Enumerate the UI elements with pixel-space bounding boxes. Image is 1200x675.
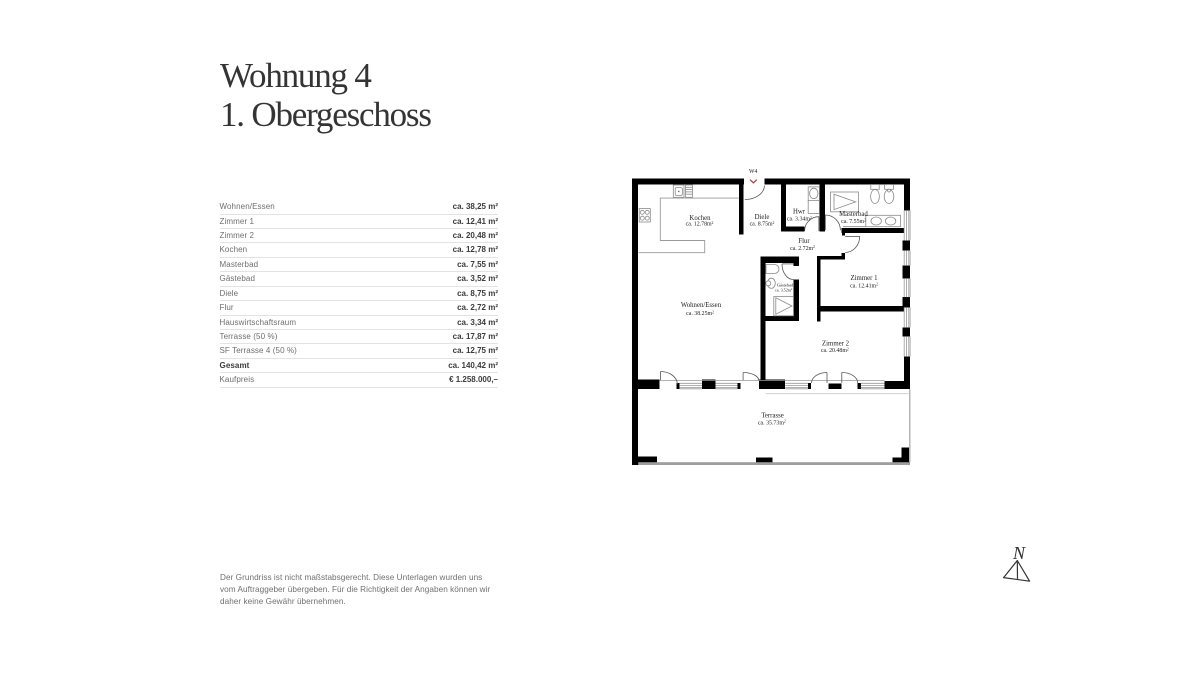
svg-text:ca. 3.52m2: ca. 3.52m2 (775, 287, 793, 292)
svg-text:ca. 35.73m2: ca. 35.73m2 (758, 420, 786, 427)
svg-text:W4: W4 (749, 169, 757, 175)
svg-text:ca. 2.72m2: ca. 2.72m2 (790, 245, 815, 252)
svg-text:ca. 3.34m2: ca. 3.34m2 (787, 216, 812, 223)
svg-text:Flur: Flur (798, 238, 810, 245)
svg-text:ca. 8.75m2: ca. 8.75m2 (750, 221, 775, 228)
svg-text:Zimmer 1: Zimmer 1 (851, 275, 878, 282)
svg-text:ca. 12.41m2: ca. 12.41m2 (850, 283, 878, 290)
svg-text:ca. 38.25m2: ca. 38.25m2 (686, 310, 714, 317)
svg-text:Terrasse: Terrasse (761, 413, 784, 420)
svg-text:ca. 20.48m2: ca. 20.48m2 (821, 348, 849, 355)
svg-text:Hwr: Hwr (793, 209, 806, 216)
svg-text:N: N (1012, 543, 1026, 563)
svg-text:Diele: Diele (755, 214, 770, 221)
svg-text:ca. 12.78m2: ca. 12.78m2 (686, 221, 714, 228)
svg-text:Wohnen/Essen: Wohnen/Essen (681, 302, 722, 309)
svg-text:ca. 7.55m2: ca. 7.55m2 (841, 218, 866, 225)
svg-text:Zimmer 2: Zimmer 2 (822, 340, 850, 347)
svg-text:Masterbad: Masterbad (839, 211, 868, 218)
